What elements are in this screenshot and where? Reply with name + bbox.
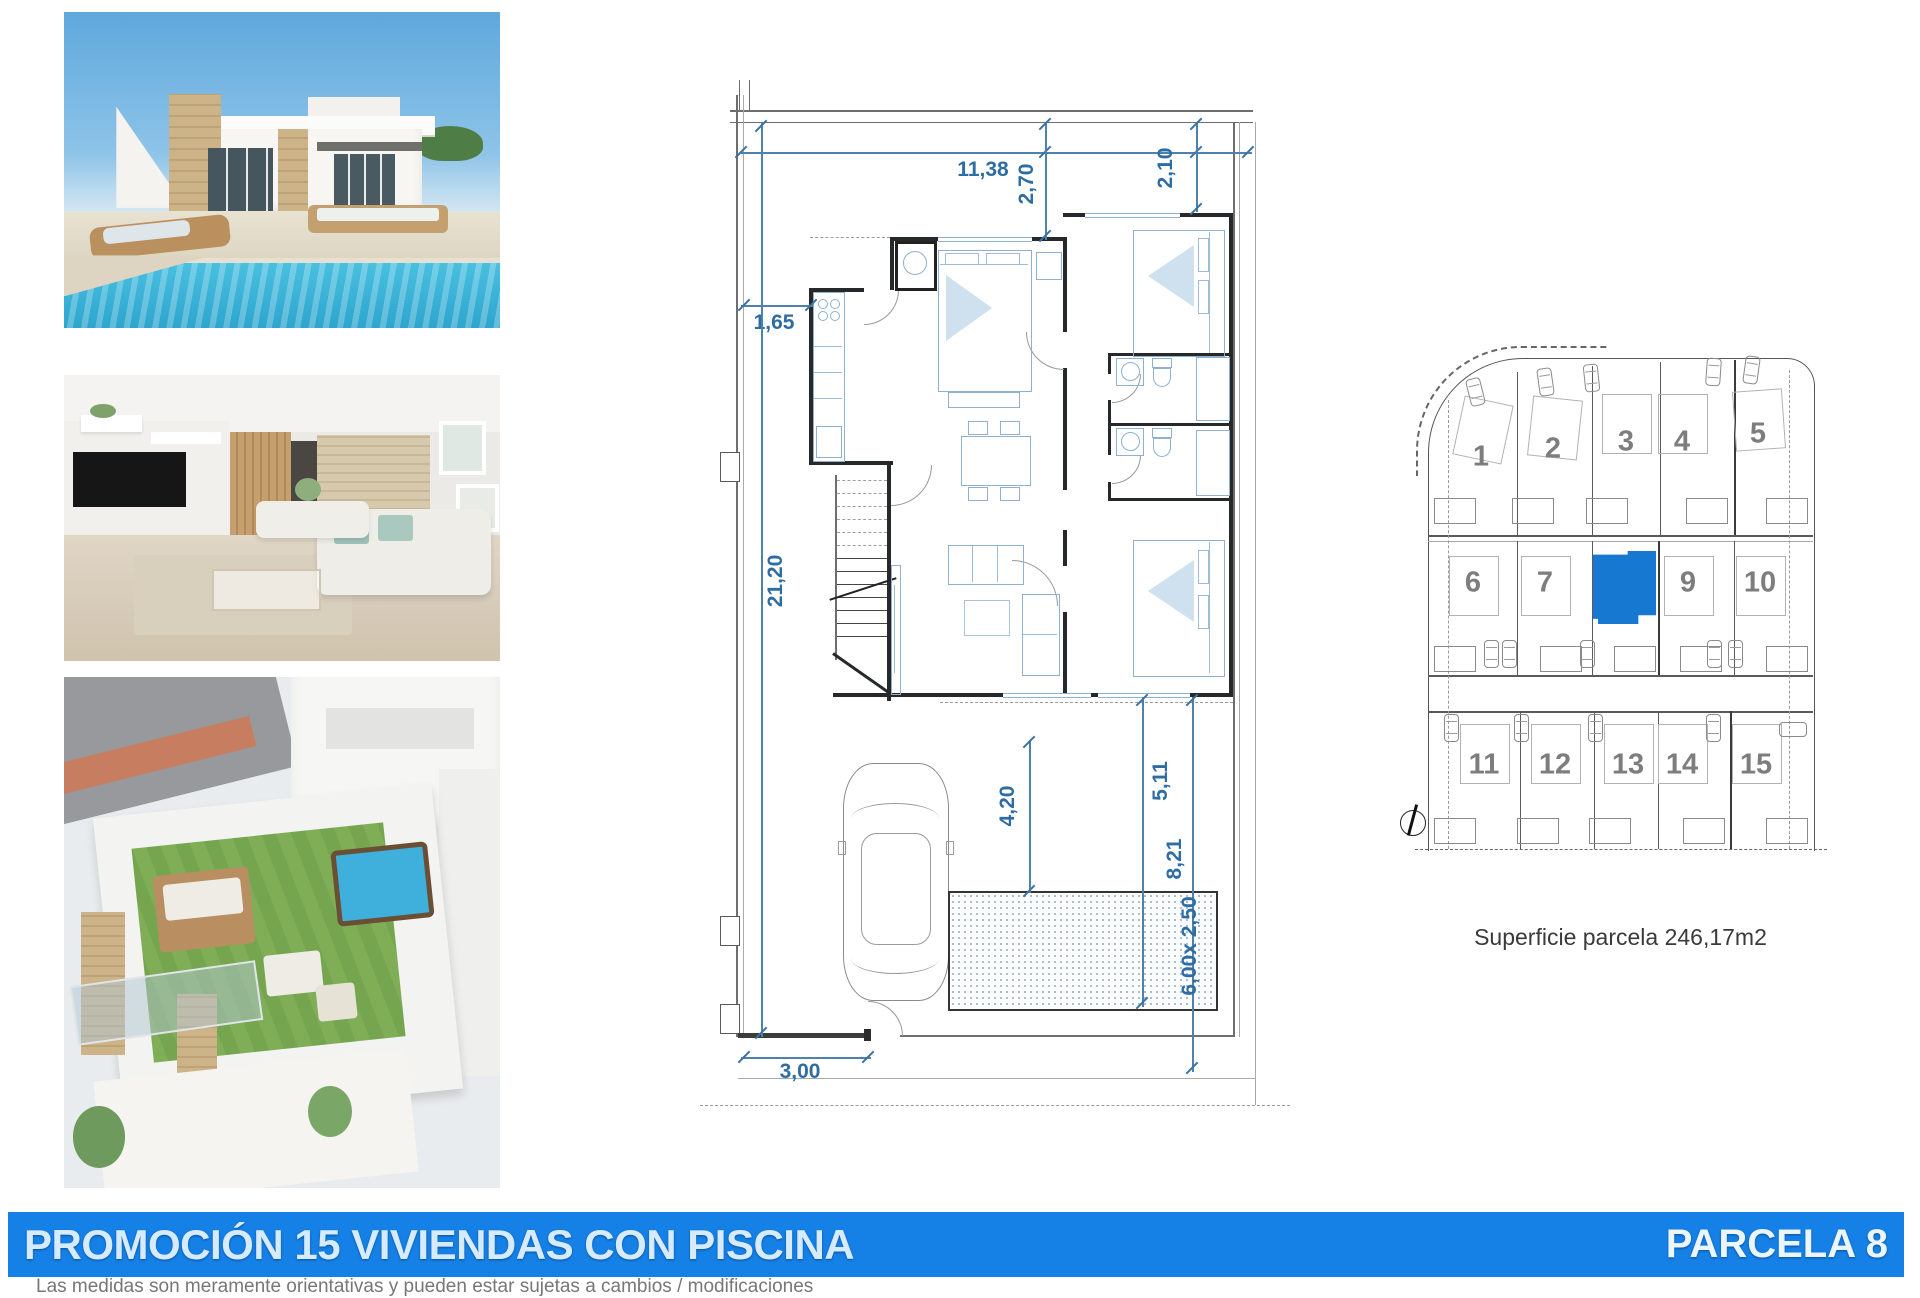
interior-wall <box>1063 368 1067 490</box>
garage <box>1683 818 1725 844</box>
parcel-15-number: 15 <box>1740 749 1772 782</box>
car-icon <box>1583 363 1601 392</box>
stair-tread <box>837 506 887 507</box>
stair-wall <box>835 475 837 660</box>
sink-basin <box>1121 432 1140 451</box>
bathroom-wall <box>1108 353 1111 374</box>
parcel-6-number: 6 <box>1465 567 1481 600</box>
dimension-line <box>1029 740 1031 893</box>
shower <box>1196 430 1230 496</box>
tv-screen <box>73 452 186 506</box>
coffee-table <box>212 569 321 610</box>
upper-roof <box>308 97 400 116</box>
garage <box>1589 818 1631 844</box>
dining-table <box>961 436 1031 486</box>
counter-line <box>814 346 842 347</box>
car-roof <box>861 833 931 945</box>
garage <box>1766 646 1808 672</box>
interior-wall <box>1063 612 1067 697</box>
car-rear-window <box>851 943 939 974</box>
parcel-12-number: 12 <box>1539 749 1571 782</box>
entry-door-arc <box>864 290 899 325</box>
stair-tread <box>837 623 887 624</box>
garage <box>1434 818 1476 844</box>
car-icon <box>1707 640 1722 668</box>
wall-art-frame <box>439 421 486 475</box>
jacuzzi <box>331 841 436 927</box>
window <box>1003 693 1091 698</box>
bathroom-wall <box>1108 482 1111 501</box>
coffee-table <box>964 600 1010 636</box>
tv-unit <box>891 565 901 695</box>
dim-label-plot-depth: 21,20 <box>764 549 788 613</box>
plant <box>308 1086 352 1137</box>
map-inner-dashed <box>1789 370 1790 849</box>
garage <box>1434 498 1476 524</box>
sofa-line <box>972 546 973 582</box>
car-mirror <box>946 841 954 855</box>
pillow <box>986 253 1020 265</box>
stair-tread <box>837 610 887 611</box>
nightstand <box>1036 252 1062 280</box>
pillow <box>1198 238 1209 272</box>
sofa-cushions <box>317 208 439 221</box>
car-icon <box>1706 714 1721 742</box>
parcel-4-number: 4 <box>1674 426 1690 459</box>
dim-label-terrace-depth: 4,20 <box>996 779 1020 833</box>
map-road-line <box>1428 711 1813 713</box>
plot-top-line <box>730 110 1253 112</box>
dimension-line <box>1142 697 1144 1007</box>
parcel-3-number: 3 <box>1618 426 1634 459</box>
awning <box>317 142 422 151</box>
dimension-line <box>741 305 813 307</box>
dimension-line <box>1045 122 1047 240</box>
pillow <box>1198 595 1209 629</box>
garage <box>1614 646 1656 672</box>
chair <box>968 487 988 501</box>
disclaimer-text: Las medidas son meramente orientativas y… <box>36 1276 813 1298</box>
boundary-stub <box>739 80 740 110</box>
parcel-9-number: 9 <box>1680 567 1696 600</box>
dim-label-gate-width: 3,00 <box>762 1060 838 1084</box>
shelf <box>81 415 142 432</box>
stove-burner <box>818 311 828 321</box>
car-icon <box>1514 714 1529 742</box>
map-road-line <box>1428 541 1813 542</box>
stove-burner <box>830 311 840 321</box>
door-arc <box>891 465 932 506</box>
rooftop-terrace-photo <box>64 677 500 1188</box>
parcel-5-number: 5 <box>1750 418 1766 451</box>
garage <box>1512 498 1554 524</box>
plant <box>295 478 321 501</box>
stove-burner <box>818 299 828 309</box>
boundary-jog <box>720 916 740 946</box>
garage <box>1517 818 1559 844</box>
window <box>1085 213 1180 218</box>
plot-left-line <box>743 95 744 1037</box>
bathroom-wall <box>1108 498 1233 501</box>
villa-exterior-pool-photo <box>64 12 500 328</box>
garage <box>1766 818 1808 844</box>
street-dashed-line <box>700 1105 1290 1106</box>
dim-label-setback: 1,65 <box>746 311 802 335</box>
car-icon <box>1705 358 1722 387</box>
dimension-line <box>1192 697 1194 1072</box>
gate-door-arc <box>868 1001 903 1036</box>
parcel-13-number: 13 <box>1612 749 1644 782</box>
front-wall <box>900 1035 1233 1037</box>
parcel-10-number: 10 <box>1744 567 1776 600</box>
map-inner-dashed <box>1448 400 1449 849</box>
parcel-divider <box>1517 541 1518 675</box>
car-icon <box>1502 640 1517 668</box>
stove-burner <box>830 299 840 309</box>
chair <box>1000 421 1020 435</box>
window <box>938 237 1032 242</box>
boundary-stub <box>749 80 750 110</box>
parcel-label: PARCELA 8 <box>1666 1222 1888 1267</box>
plot-top-line <box>730 122 1253 123</box>
stair-tread <box>837 558 887 559</box>
plot-left-line <box>736 95 738 1037</box>
dimension-line <box>1196 122 1198 212</box>
car-mirror <box>838 841 846 855</box>
washing-machine-drum <box>903 251 927 275</box>
stair-tread <box>837 532 887 533</box>
chair <box>968 421 988 435</box>
stone-pillar <box>278 129 309 214</box>
dimension-line <box>741 1057 871 1059</box>
plant <box>73 1106 125 1167</box>
sofa <box>1022 594 1060 676</box>
parcel-divider-heavy <box>1658 541 1660 675</box>
stair-tread <box>837 597 887 598</box>
parcel-14-number: 14 <box>1666 749 1698 782</box>
sink-basin <box>1121 362 1140 381</box>
garage <box>1434 646 1476 672</box>
map-road-line <box>1428 535 1813 537</box>
garage <box>1586 498 1628 524</box>
parcel-11-number: 11 <box>1469 749 1500 782</box>
stair-tread <box>837 636 887 637</box>
bathroom-wall <box>1108 400 1111 455</box>
garage <box>1540 646 1582 672</box>
plant <box>90 404 116 418</box>
toilet-tank <box>1152 358 1172 368</box>
glass-window <box>334 154 395 208</box>
shower <box>1196 357 1230 421</box>
map-road-line <box>1428 675 1813 677</box>
bathroom-wall <box>1108 423 1233 426</box>
stair-tread <box>837 519 887 520</box>
sofa-cushion <box>378 515 413 541</box>
bed-bench <box>948 392 1020 408</box>
map-bottom-dashed <box>1415 849 1827 850</box>
stair-diagonal-wall <box>832 652 893 696</box>
dim-label-bed1-depth: 2,70 <box>1015 159 1039 209</box>
sofa-line <box>997 546 998 582</box>
stair-tread <box>837 480 887 481</box>
dim-label-yard-1: 5,11 <box>1149 754 1173 808</box>
sofa-back <box>256 501 369 538</box>
plot-right-wall <box>1233 122 1235 1037</box>
glass-doors <box>208 148 273 211</box>
stair-tread <box>837 493 887 494</box>
living-room-interior-photo <box>64 375 500 661</box>
parcel-area-note: Superficie parcela 246,17m2 <box>1428 924 1813 951</box>
car-icon <box>1444 714 1459 742</box>
parcel-7-number: 7 <box>1537 567 1553 600</box>
dim-label-top-width: 11,38 <box>945 158 1021 182</box>
car-icon <box>1484 640 1499 668</box>
chair <box>1000 487 1020 501</box>
sofa <box>948 545 1024 585</box>
footer-banner: PROMOCIÓN 15 VIVIENDAS CON PISCINA PARCE… <box>8 1212 1904 1277</box>
counter-line <box>814 398 842 399</box>
porch-dashed-line <box>810 237 890 238</box>
garage <box>1766 498 1808 524</box>
garage <box>1686 498 1728 524</box>
lounge-chair <box>263 950 324 997</box>
dim-label-yard-2: 8,21 <box>1163 832 1187 886</box>
car-icon <box>1779 722 1807 737</box>
parcel-1-number: 1 <box>1473 441 1489 474</box>
boundary-jog <box>720 1004 740 1034</box>
lounge-chair <box>315 982 358 1022</box>
door-arc <box>1112 455 1141 484</box>
neighbor-roof-edge <box>326 708 474 749</box>
pillow <box>1198 550 1209 584</box>
dim-label-bed2-depth: 2,10 <box>1154 143 1178 193</box>
car-windshield <box>851 803 939 834</box>
boundary-jog <box>720 452 740 482</box>
promotion-title: PROMOCIÓN 15 VIVIENDAS CON PISCINA <box>24 1221 854 1269</box>
stair-tread <box>837 571 887 572</box>
tv-screen-line <box>894 585 895 673</box>
toilet-tank <box>1152 428 1172 438</box>
toilet-bowl <box>1153 368 1171 387</box>
wall <box>890 237 894 290</box>
plot-right-wall <box>1239 122 1240 1037</box>
interior-wall <box>1063 237 1067 332</box>
toilet-bowl <box>1153 438 1171 457</box>
counter-line <box>814 372 842 373</box>
pillow <box>1198 280 1209 314</box>
parcel-2-number: 2 <box>1545 433 1561 466</box>
car-icon <box>1728 640 1743 668</box>
dim-label-pool-size: 6,00x 2,50 <box>1178 888 1202 1004</box>
dimension-line <box>761 122 763 1037</box>
highlighted-parcel-8 <box>1593 551 1656 624</box>
fridge <box>816 426 842 458</box>
car-icon <box>1580 640 1595 668</box>
bed-headboard-line <box>1209 542 1210 673</box>
sofa-line <box>1023 634 1057 635</box>
pillow <box>945 253 979 265</box>
stair-tread <box>837 545 887 546</box>
neighbor-line <box>1255 122 1256 1105</box>
bed-headboard-line <box>1209 232 1210 353</box>
shelf <box>151 432 221 443</box>
interior-wall <box>1063 530 1067 566</box>
car-icon <box>1588 714 1603 742</box>
